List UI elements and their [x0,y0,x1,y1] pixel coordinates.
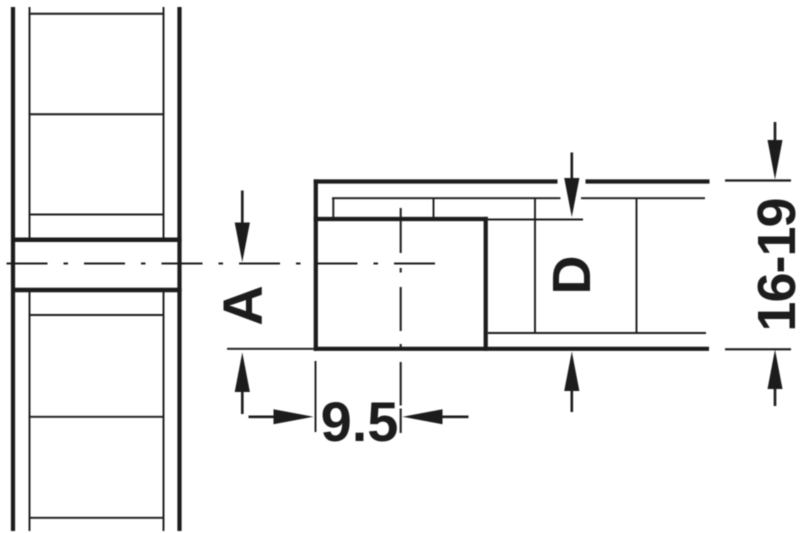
svg-text:16-19: 16-19 [747,198,800,331]
svg-text:D: D [542,256,602,295]
svg-text:A: A [211,285,274,325]
svg-text:9.5: 9.5 [321,390,399,453]
